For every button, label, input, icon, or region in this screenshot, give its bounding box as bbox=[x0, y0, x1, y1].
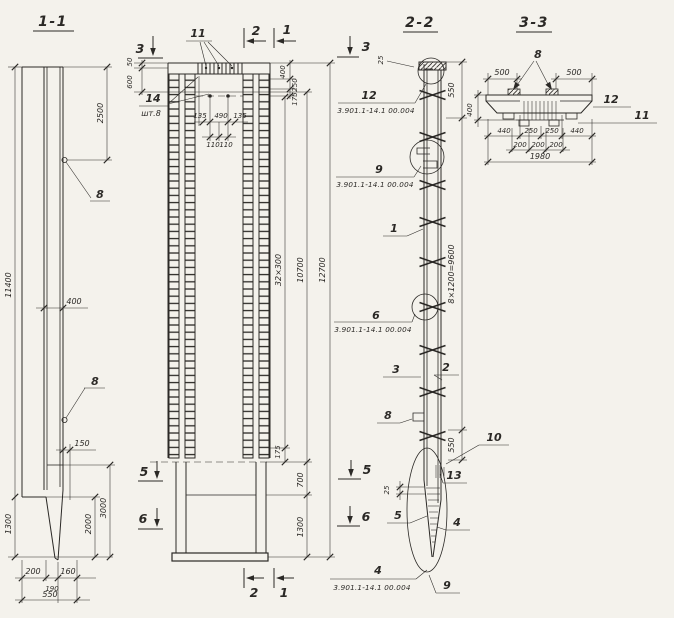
callout-8-sling: 8 bbox=[534, 48, 542, 61]
dim-250-right: 250 bbox=[545, 127, 559, 135]
callout-3: 3 bbox=[392, 363, 400, 376]
dim-500-left: 500 bbox=[494, 68, 509, 77]
callout-14: 14 bbox=[145, 92, 160, 105]
section-mark-6: 6 bbox=[362, 509, 371, 524]
dim-250-top: 250 bbox=[291, 78, 299, 92]
elevation-dimensions: 50 600 135 490 135 110 110 400 250 bbox=[126, 57, 335, 560]
dim-10700: 10700 bbox=[296, 257, 305, 282]
dim-175-top: 175 bbox=[291, 92, 299, 106]
dim-400-top: 400 bbox=[279, 65, 287, 79]
callout-9-bottom: 9 bbox=[443, 579, 451, 592]
callout-5: 5 bbox=[394, 509, 402, 522]
rebar-cage-strip bbox=[169, 74, 179, 458]
callout-14-qty: шт.8 bbox=[141, 109, 161, 118]
callout-4-ref: 3.901.1-14.1 00.004 bbox=[333, 583, 410, 592]
dim-1300-box: 1300 bbox=[296, 517, 305, 537]
bottom-plate bbox=[172, 553, 268, 561]
dim-440-left: 440 bbox=[497, 127, 511, 135]
dim-stirrup-run: 8×1200=9600 bbox=[447, 244, 456, 303]
callout-13: 13 bbox=[446, 469, 462, 482]
anchor-point bbox=[208, 94, 212, 98]
callout-9: 9 bbox=[375, 163, 383, 176]
dim-200-a: 200 bbox=[513, 141, 527, 149]
rebar-cage-strip bbox=[243, 74, 253, 458]
section-mark-3: 3 bbox=[136, 41, 145, 56]
pile-section-body bbox=[407, 58, 447, 572]
callout-12: 12 bbox=[361, 89, 377, 102]
callout-10: 10 bbox=[486, 431, 502, 444]
section-mark-5: 5 bbox=[363, 462, 372, 477]
section-2-2-callouts: 12 3.901.1-14.1 00.004 9 3.901.1-14.1 00… bbox=[330, 84, 509, 593]
dim-250-left: 250 bbox=[524, 127, 538, 135]
dim-600: 600 bbox=[126, 75, 134, 89]
section-mark-6: 6 bbox=[139, 511, 148, 526]
dim-200: 200 bbox=[25, 567, 40, 576]
callout-6-ref: 3.901.1-14.1 00.004 bbox=[334, 325, 411, 334]
callout-4-bottom: 4 bbox=[373, 564, 382, 577]
callout-4-mid: 4 bbox=[452, 516, 461, 529]
cap-section-body bbox=[486, 89, 592, 126]
section-2-2-marks: 5 6 bbox=[337, 460, 372, 526]
dim-1980-total: 1980 bbox=[530, 152, 550, 161]
section-1-1-title: 1-1 bbox=[38, 14, 68, 30]
callout-11: 11 bbox=[634, 109, 649, 122]
callout-loop-8-bottom: 8 bbox=[91, 375, 99, 388]
dim-200-b: 200 bbox=[531, 141, 545, 149]
dim-3000: 3000 bbox=[99, 498, 108, 518]
rebar-cage-strip bbox=[259, 74, 269, 458]
section-mark-5: 5 bbox=[140, 464, 149, 479]
callout-12: 12 bbox=[603, 93, 619, 106]
elevation-view: 3 5 6 2 1 2 1 11 bbox=[126, 22, 335, 600]
callout-6: 6 bbox=[372, 309, 380, 322]
section-2-2-view: 2-2 3 bbox=[330, 15, 509, 593]
dim-160: 160 bbox=[60, 567, 75, 576]
callout-8: 8 bbox=[384, 409, 392, 422]
cap-center-studs bbox=[524, 101, 556, 120]
section-3-3-view: 3-3 8 12 bbox=[466, 15, 657, 165]
dim-110-right: 110 bbox=[219, 141, 233, 149]
dim-25-top: 25 bbox=[377, 55, 385, 64]
dim-135-right: 135 bbox=[233, 112, 247, 120]
dim-2500: 2500 bbox=[96, 103, 105, 123]
dim-150: 150 bbox=[74, 439, 89, 448]
callout-11: 11 bbox=[190, 27, 205, 40]
dim-25-bottom: 25 bbox=[383, 485, 391, 494]
callout-9-ref: 3.901.1-14.1 00.004 bbox=[336, 180, 413, 189]
section-mark-2-bottom: 2 bbox=[250, 585, 259, 600]
dim-550-bottom: 550 bbox=[447, 437, 456, 452]
callout-1: 1 bbox=[390, 222, 398, 235]
dim-400-height: 400 bbox=[466, 103, 474, 117]
pile-drawing: 1-1 11400 1300 bbox=[0, 0, 674, 618]
anchor-point bbox=[226, 94, 230, 98]
dim-175-bottom: 175 bbox=[274, 445, 282, 459]
section-mark-1-top: 1 bbox=[283, 22, 292, 37]
dim-stirrup-spacing: 32×300 bbox=[274, 254, 283, 286]
callout-12-ref: 3.901.1-14.1 00.004 bbox=[337, 106, 414, 115]
dim-700: 700 bbox=[296, 472, 305, 487]
dim-490: 490 bbox=[214, 112, 228, 120]
section-mark-1-bottom: 1 bbox=[280, 585, 289, 600]
pile-side-outline bbox=[22, 67, 67, 560]
rebar-cage-strip bbox=[185, 74, 195, 458]
dim-50: 50 bbox=[126, 57, 134, 66]
section-mark-3: 3 bbox=[362, 39, 371, 54]
section-1-1-dimensions: 11400 1300 2500 8 8 400 150 bbox=[4, 64, 115, 603]
section-1-1-view: 1-1 11400 1300 bbox=[4, 14, 115, 603]
dim-135-left: 135 bbox=[193, 112, 207, 120]
dim-550: 550 bbox=[42, 590, 57, 599]
dim-200-c: 200 bbox=[549, 141, 563, 149]
dim-11400: 11400 bbox=[4, 272, 13, 297]
callout-2: 2 bbox=[442, 361, 450, 374]
section-mark-2-top: 2 bbox=[252, 23, 261, 38]
section-2-2-title: 2-2 bbox=[405, 15, 435, 31]
dim-550-top: 550 bbox=[447, 82, 456, 97]
drawing-sheet: 1-1 11400 1300 bbox=[0, 0, 674, 618]
dim-440-right: 440 bbox=[570, 127, 584, 135]
dim-500-right: 500 bbox=[566, 68, 581, 77]
section-3-3-title: 3-3 bbox=[519, 15, 549, 31]
section-2-2-dimensions: 25 550 8×1200=9600 550 25 bbox=[377, 55, 467, 500]
section-3-3-callouts: 12 11 bbox=[578, 93, 657, 123]
loop-8-detail bbox=[413, 413, 424, 421]
dim-400-width: 400 bbox=[66, 297, 81, 306]
dim-1300: 1300 bbox=[4, 514, 13, 534]
dim-110-left: 110 bbox=[206, 141, 220, 149]
callout-loop-8-top: 8 bbox=[96, 188, 104, 201]
dim-2000: 2000 bbox=[84, 514, 93, 534]
dim-12700: 12700 bbox=[318, 257, 327, 282]
